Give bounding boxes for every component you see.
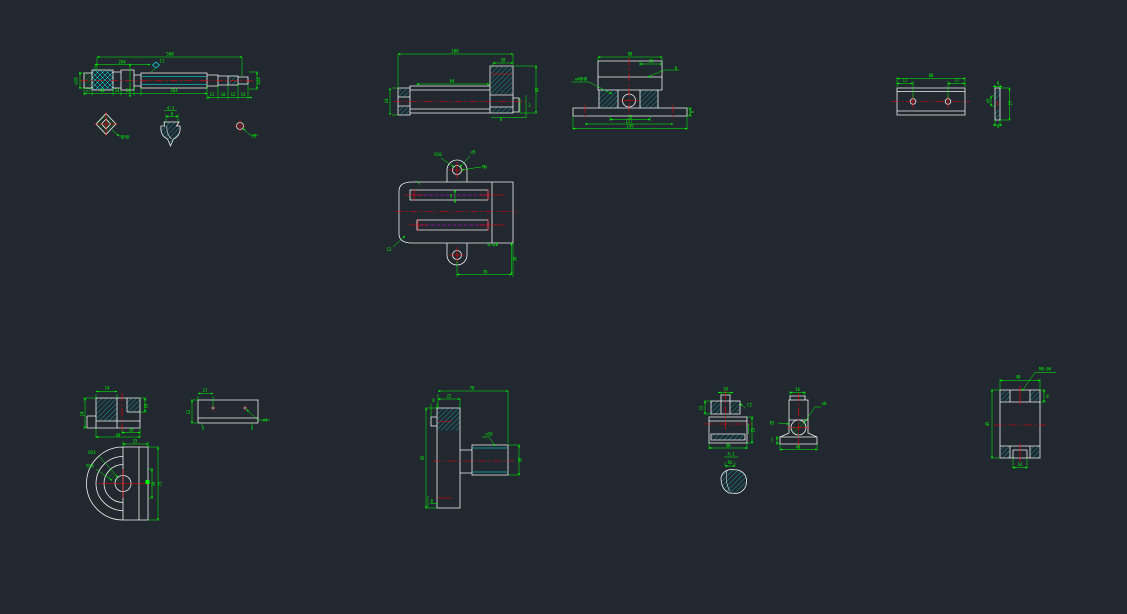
section-hatch bbox=[399, 89, 409, 97]
section-hatch bbox=[1001, 391, 1010, 402]
dim-label: 30 bbox=[513, 256, 518, 261]
leader-chamfer bbox=[740, 404, 746, 409]
dim-label: 7 bbox=[771, 438, 774, 443]
dim-label: 6 bbox=[997, 81, 1000, 86]
dim-label: ⌀9 bbox=[471, 150, 476, 155]
dim-label: 40 bbox=[1016, 375, 1021, 380]
leader-hole-dia bbox=[460, 156, 470, 167]
dim-label: 14 bbox=[1018, 462, 1023, 467]
dim-label: ⌀24 bbox=[256, 77, 261, 85]
dim-label: R3 bbox=[770, 421, 775, 426]
view-hole-detail[interactable]: ⌀3 bbox=[234, 120, 258, 139]
section-hatch bbox=[995, 89, 1000, 100]
dim-label: ⌀18 bbox=[74, 77, 79, 85]
view-plate-with-boss[interactable]: 702289530⌀366 bbox=[420, 386, 523, 509]
dim-label: 24 bbox=[80, 411, 85, 416]
dim-label: 264 bbox=[170, 88, 178, 93]
dim-label: 22 bbox=[447, 394, 452, 399]
view-thread-profile-detail[interactable]: 4:16 bbox=[161, 106, 180, 147]
dim-label: 8 bbox=[1046, 394, 1049, 399]
part-outline bbox=[573, 61, 687, 116]
dim-label: 14 bbox=[115, 88, 120, 93]
dim-label: 20 bbox=[501, 58, 506, 63]
leader-line bbox=[243, 129, 250, 136]
thread-marks bbox=[438, 422, 452, 499]
dim-label: 12 bbox=[186, 409, 191, 414]
dim-label: 24 bbox=[126, 88, 131, 93]
dim-label: 24 bbox=[384, 98, 389, 103]
dim-label: 145 bbox=[626, 124, 634, 129]
section-hatch bbox=[96, 398, 117, 421]
leader-fillet bbox=[778, 423, 789, 424]
dim-label: 78 bbox=[483, 270, 488, 275]
leader-thread bbox=[1022, 373, 1035, 392]
slot-centerlines bbox=[413, 195, 489, 225]
dim-label: 10 bbox=[723, 387, 728, 392]
dim-label: 10 bbox=[144, 403, 149, 408]
dim-label: 500 bbox=[166, 52, 174, 57]
dim-label: 11 bbox=[210, 92, 215, 97]
leader-line bbox=[112, 130, 119, 136]
plate-outline bbox=[399, 160, 513, 265]
cad-drawing-canvas[interactable]: 500204C11730142426411101214⌀24⌀18 B-B 4:… bbox=[0, 0, 1127, 614]
section-hatch bbox=[711, 434, 745, 440]
section-hatch bbox=[1030, 447, 1039, 458]
section-hatch bbox=[438, 409, 460, 431]
dim-label: ⌀36 bbox=[485, 432, 493, 437]
dim-label: 14 bbox=[105, 386, 110, 391]
dim-label: 26 bbox=[151, 481, 156, 486]
dim-label: 80 bbox=[929, 73, 934, 78]
dim-label: 6 bbox=[171, 112, 174, 117]
tolerance-flag-icon bbox=[153, 62, 160, 68]
dim-label: 30 bbox=[100, 88, 105, 93]
section-crosshatch bbox=[93, 71, 113, 90]
dim-label: M8-6H bbox=[1039, 367, 1052, 372]
view-detail-4-1[interactable]: 4:1R2 bbox=[721, 452, 747, 494]
section-hatch bbox=[1030, 391, 1039, 402]
section-hatch bbox=[599, 90, 618, 108]
view-sleeve-section[interactable]: M8-6H4084514 bbox=[985, 367, 1056, 470]
dim-label: 12 bbox=[231, 92, 236, 97]
section-hatch bbox=[1001, 447, 1010, 458]
leader-radius bbox=[441, 158, 454, 167]
view-bracket-top[interactable]: R10⌀9M68C278306 bbox=[387, 150, 518, 278]
dim-label: 70 bbox=[470, 386, 475, 391]
dim-label: ⌀40H8 bbox=[575, 77, 588, 82]
dim-label: 4:1 bbox=[167, 106, 175, 111]
dim-label: 17 bbox=[203, 388, 208, 393]
datum-square bbox=[146, 480, 150, 484]
dim-label: 10 bbox=[221, 92, 226, 97]
dim-label: 45 bbox=[535, 87, 540, 92]
dim-label: 25 bbox=[133, 439, 138, 444]
dim-label: 6 bbox=[431, 499, 434, 504]
dim-label: 8 bbox=[432, 398, 435, 403]
view-plate-side[interactable]: 1712⌀433 bbox=[186, 388, 270, 431]
section-hatch bbox=[127, 398, 140, 412]
dim-label: 14 bbox=[241, 92, 246, 97]
dim-label: 44 bbox=[116, 433, 121, 438]
view-block-section[interactable]: 1424101844 bbox=[80, 386, 149, 439]
dim-label: 64 bbox=[450, 79, 455, 84]
dim-label: 95 bbox=[420, 455, 425, 460]
view-shaft-front[interactable]: 500204C11730142426411101214⌀24⌀18 bbox=[74, 52, 262, 100]
hole-center-marks bbox=[210, 405, 248, 411]
center-marks bbox=[234, 120, 246, 132]
dim-label: 16 bbox=[795, 387, 800, 392]
pad-outline bbox=[721, 470, 747, 494]
dim-label: 4:1 bbox=[727, 452, 735, 457]
dim-label: 88 bbox=[628, 52, 633, 57]
dim-label: 17 bbox=[955, 78, 960, 83]
dim-label: M6 bbox=[482, 165, 487, 170]
leader-hole-dia bbox=[804, 407, 815, 423]
dim-label: B-B bbox=[121, 135, 129, 140]
dim-label: 204 bbox=[118, 60, 126, 65]
dim-label: 30 bbox=[518, 457, 523, 462]
dim-label: 45 bbox=[985, 421, 990, 426]
tooth-outline bbox=[161, 122, 180, 146]
view-stud-block-section[interactable]: 1012C22540 bbox=[699, 387, 756, 450]
dim-label: 108 bbox=[451, 49, 459, 54]
dim-label: 3 bbox=[528, 103, 531, 108]
extension-lines bbox=[991, 373, 1056, 470]
section-hatch bbox=[711, 401, 720, 414]
dim-label: 3 bbox=[251, 426, 254, 431]
dim-label: 25 bbox=[751, 427, 756, 432]
dim-label: 8 bbox=[450, 194, 453, 199]
section-hatch bbox=[491, 108, 512, 113]
section-hatch bbox=[995, 110, 1000, 119]
dim-label: 17 bbox=[86, 88, 91, 93]
dim-label: ⌀8 bbox=[822, 401, 827, 406]
dim-label: 30 bbox=[649, 59, 654, 64]
dim-label: 27 bbox=[1008, 100, 1013, 105]
center-marks bbox=[94, 112, 118, 136]
leader-hole bbox=[247, 410, 259, 421]
dim-label: 40 bbox=[796, 445, 801, 450]
view-pivot-base[interactable]: 16⌀8R3407 bbox=[770, 387, 827, 451]
view-shaft-section-detail[interactable]: B-B bbox=[94, 112, 130, 140]
dim-label: ⌀4 bbox=[263, 418, 268, 423]
extension-lines bbox=[123, 442, 159, 521]
view-pedestal-front[interactable]: 88306⌀40H8561171458 bbox=[572, 52, 695, 131]
dim-label: 3 bbox=[202, 426, 205, 431]
dim-label: R24 bbox=[88, 450, 96, 455]
dim-label: 18 bbox=[129, 428, 134, 433]
section-hatch bbox=[399, 107, 409, 115]
dim-label: C2 bbox=[387, 247, 392, 252]
dim-label: R18 bbox=[86, 464, 94, 469]
cylinder-lines bbox=[473, 448, 507, 472]
view-clamp-bar[interactable]: 801717627⌀54 bbox=[891, 73, 1013, 129]
extension-lines bbox=[416, 168, 514, 278]
dim-label: ⌀3 bbox=[252, 134, 257, 139]
dim-label: R2 bbox=[728, 460, 733, 465]
dim-label: 17 bbox=[903, 78, 908, 83]
dim-label: C1 bbox=[160, 59, 165, 64]
cad-model-space[interactable]: 500204C11730142426411101214⌀24⌀18 B-B 4:… bbox=[0, 0, 1127, 614]
dim-label: C2 bbox=[747, 403, 752, 408]
section-hatch bbox=[731, 401, 740, 414]
dim-label: 73 bbox=[158, 481, 163, 486]
center-marks bbox=[405, 162, 505, 263]
dim-label: 40 bbox=[726, 443, 731, 448]
section-hatch bbox=[491, 67, 512, 94]
view-bearing-housing[interactable]: R24R18257326 bbox=[86, 439, 162, 521]
center-marks bbox=[98, 469, 150, 498]
dim-label: 12 bbox=[699, 405, 704, 410]
dim-label: R10 bbox=[434, 152, 442, 157]
dim-label: ⌀5 bbox=[986, 98, 991, 103]
view-bushing-section[interactable]: 1082064452483 bbox=[384, 49, 540, 123]
leader-thread bbox=[462, 168, 478, 171]
section-hatch bbox=[640, 90, 658, 108]
